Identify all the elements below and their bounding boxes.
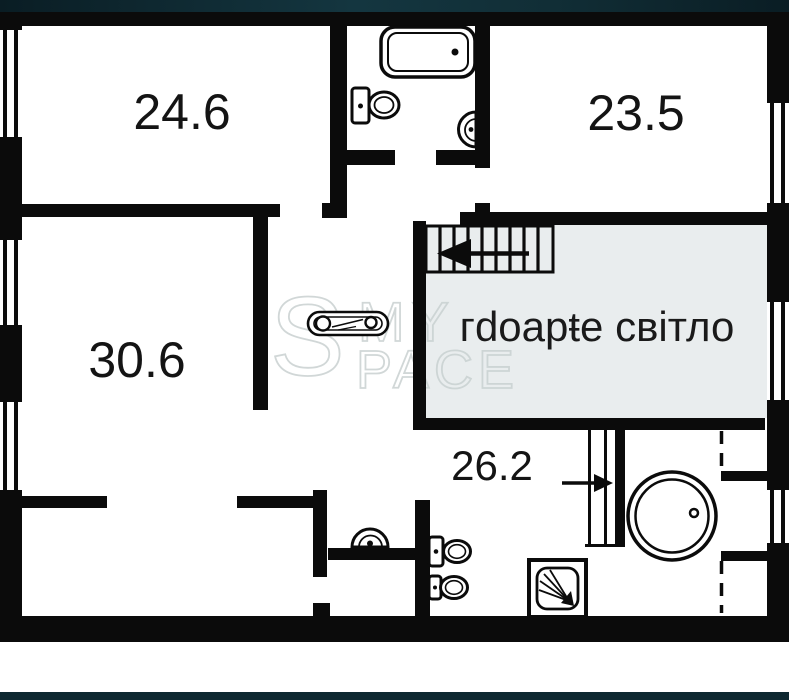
bidet-icon (429, 576, 468, 599)
floor-plan-page: S MY PACE (0, 0, 789, 700)
bathtub-icon (381, 27, 475, 77)
window (767, 490, 789, 543)
room-area-label-24-6: 24.6 (133, 87, 230, 137)
wall (460, 212, 789, 225)
wall (322, 203, 347, 218)
wall (341, 150, 395, 165)
watermark-monogram: S (270, 274, 345, 399)
shower-icon (529, 560, 586, 617)
staircase (426, 226, 553, 272)
round-tub-icon (628, 472, 716, 560)
window (767, 103, 789, 203)
room-area-label-26-2: 26.2 (451, 445, 533, 487)
second-light-label: гdoapŧe світло (460, 306, 735, 348)
wall (313, 490, 327, 577)
footer-strip: 2 рівень (0, 642, 789, 692)
window (0, 240, 22, 325)
wall (436, 150, 490, 165)
wall (721, 551, 767, 561)
wall (12, 204, 280, 217)
wall (413, 418, 765, 430)
wall (22, 496, 107, 508)
wall (313, 603, 330, 616)
exterior-wall-top (0, 12, 789, 26)
window (0, 402, 22, 490)
room-area-label-30-6: 30.6 (88, 335, 185, 385)
wall (253, 217, 268, 410)
toilet-icon (352, 88, 399, 123)
wall (615, 423, 625, 547)
towel-rail-icon (308, 312, 388, 335)
wall (330, 24, 347, 205)
toilet-icon (429, 537, 471, 566)
bottom-accent-bar (0, 692, 789, 700)
washbasin-icon (352, 529, 388, 547)
wall (721, 471, 767, 481)
window (0, 30, 22, 137)
wall (328, 548, 418, 560)
sink-icon (459, 112, 476, 147)
wall (413, 221, 426, 430)
window (767, 302, 789, 400)
room-area-label-23-5: 23.5 (587, 88, 684, 138)
exterior-wall-bottom (0, 616, 789, 642)
wall (237, 496, 317, 508)
